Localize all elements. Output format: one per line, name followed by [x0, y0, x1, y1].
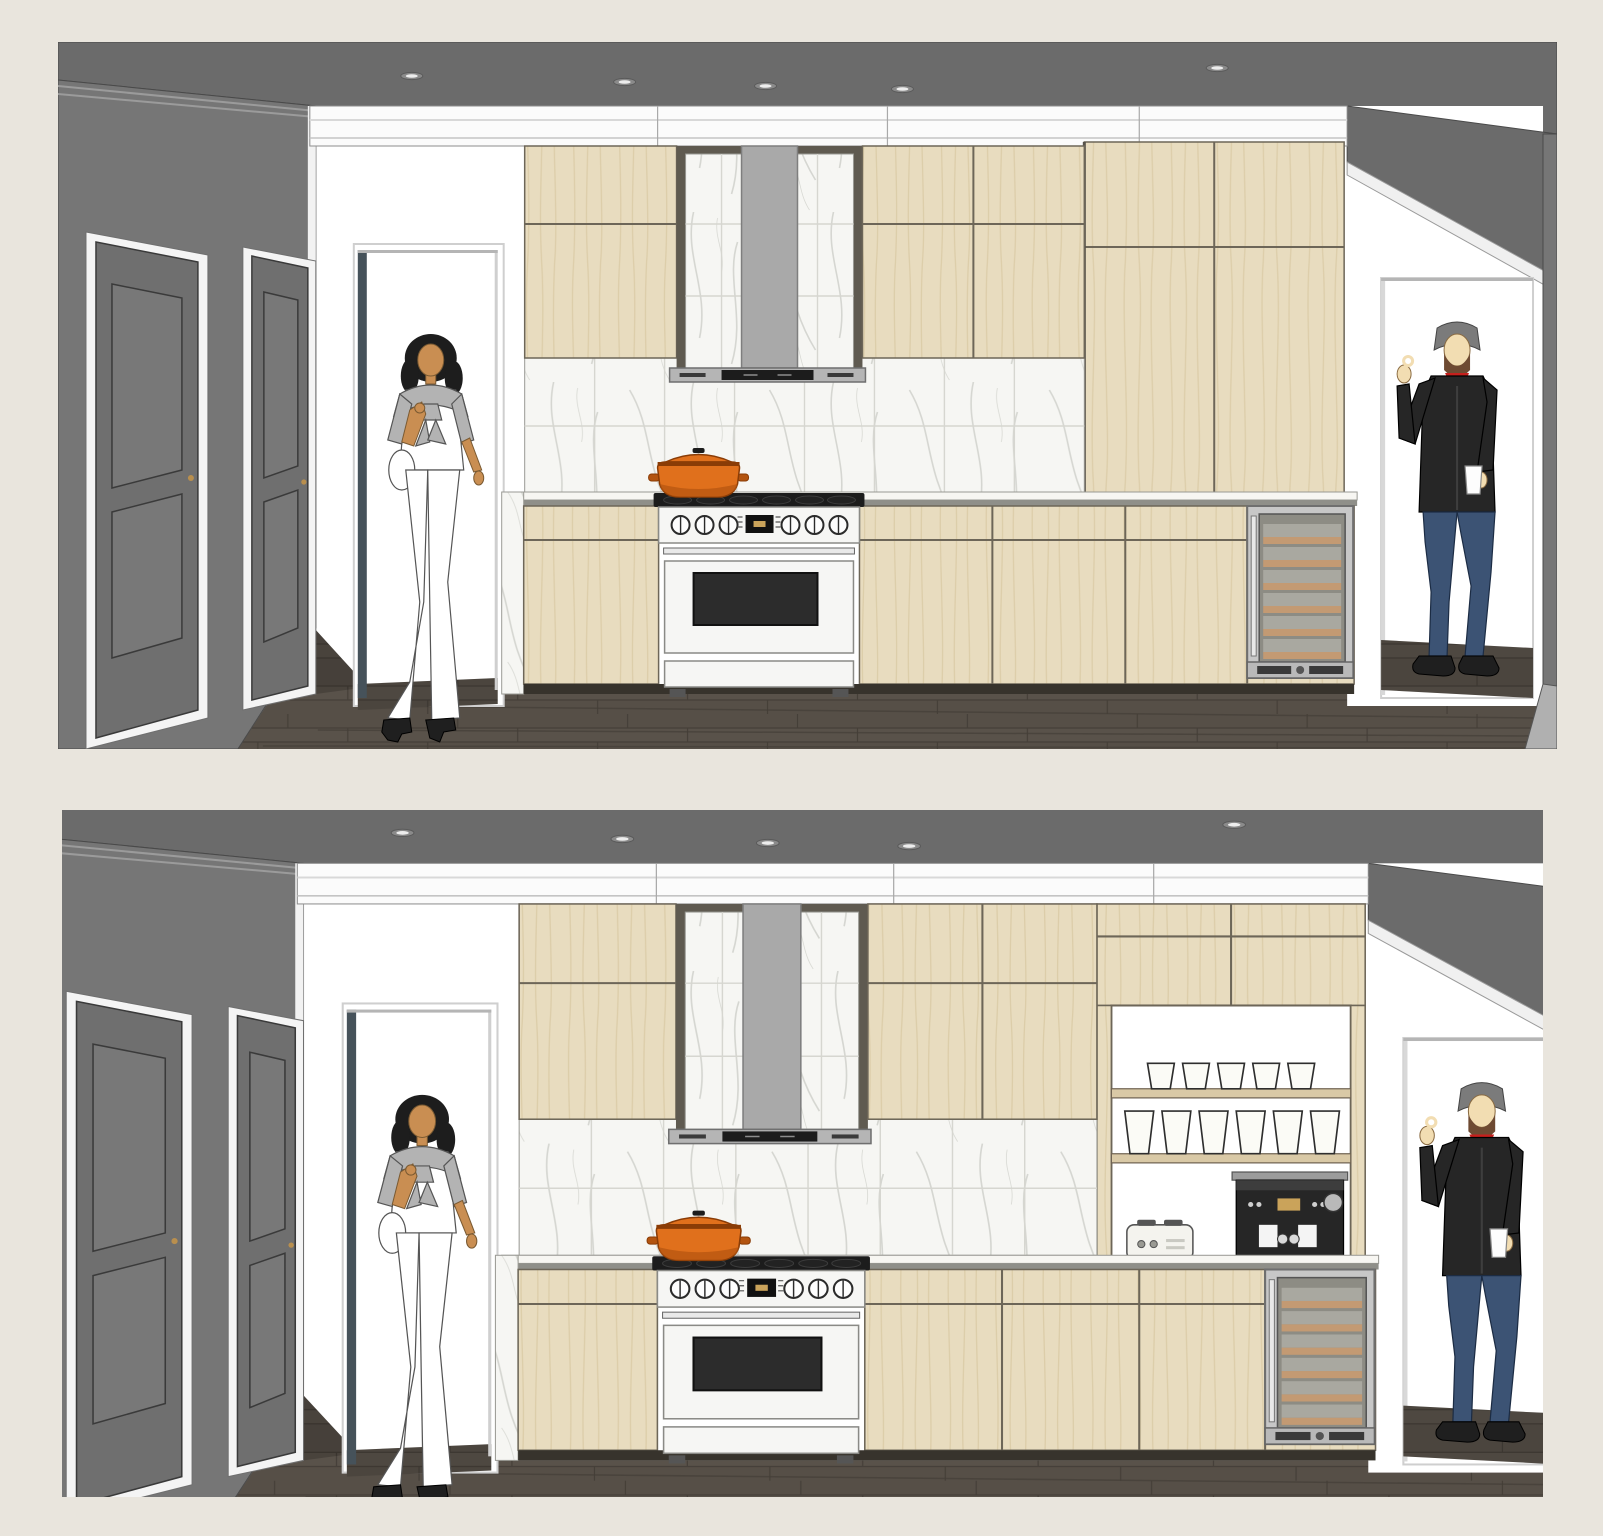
wine-cooler-handle	[1269, 1280, 1274, 1422]
recessed-light-icon	[614, 78, 636, 85]
man-shoe	[1459, 656, 1499, 676]
hood-niche	[670, 146, 866, 382]
recessed-light-icon	[891, 85, 913, 92]
gas-range	[652, 1256, 870, 1463]
warming-drawer	[665, 661, 854, 687]
hood-chimney	[742, 146, 798, 368]
wine-cooler-handle	[1251, 516, 1256, 656]
recessed-light-icon	[611, 835, 634, 842]
crown-molding	[297, 863, 1368, 904]
right-side	[1347, 106, 1557, 749]
hood-niche	[669, 904, 871, 1144]
left-side-wall	[58, 80, 316, 749]
woman-shoe	[372, 1485, 403, 1497]
woman-face	[418, 344, 444, 376]
man-shoe	[1436, 1422, 1480, 1442]
upper-cabinet-left	[525, 146, 677, 358]
espresso-machine	[1232, 1172, 1348, 1261]
stone-countertop	[502, 1255, 1379, 1269]
waterfall-end-panel	[495, 1255, 518, 1460]
left-side-wall	[62, 837, 304, 1497]
coffee-cup	[1465, 466, 1482, 494]
oven-window	[694, 1338, 822, 1391]
crown-molding	[310, 106, 1347, 146]
kitchen-rendering-scene	[62, 810, 1543, 1497]
recessed-light-icon	[391, 829, 414, 836]
right-edge-wall-strip	[1543, 134, 1557, 749]
woman-face	[409, 1105, 436, 1137]
door-knob	[188, 475, 194, 481]
recessed-light-icon	[401, 72, 423, 79]
interior-door-left	[66, 991, 192, 1497]
tall-closed-cabinets	[1084, 142, 1344, 498]
door-knob	[171, 1238, 177, 1244]
coffee-cup	[1490, 1229, 1508, 1257]
recessed-light-icon	[1206, 64, 1228, 71]
door-knob	[288, 1242, 293, 1247]
upper-cabinet-left	[519, 904, 676, 1119]
waterfall-end-panel	[502, 492, 524, 694]
warming-drawer	[664, 1427, 859, 1453]
recessed-light-icon	[1223, 821, 1246, 828]
rendering-panel-top	[58, 42, 1557, 749]
base-cabinets	[524, 506, 1354, 694]
door-jamb	[358, 250, 367, 698]
man-shoe	[1483, 1422, 1525, 1442]
gas-range	[654, 493, 865, 697]
interior-door-left	[86, 232, 208, 749]
hood-chimney	[743, 904, 801, 1129]
woman-shoe	[417, 1485, 448, 1497]
man-shoe	[1413, 656, 1455, 676]
wine-cooler	[1265, 1270, 1374, 1445]
kitchen-comparison-board	[0, 0, 1603, 1536]
wine-cooler	[1247, 506, 1353, 678]
stone-countertop	[508, 492, 1357, 506]
oven-handle	[663, 1312, 860, 1318]
door-knob	[301, 479, 306, 484]
recessed-light-icon	[898, 842, 921, 849]
rendering-panel-bottom	[62, 810, 1543, 1497]
toaster	[1127, 1220, 1193, 1260]
right-side	[1368, 863, 1543, 1497]
oven-handle	[664, 548, 855, 554]
recessed-light-icon	[756, 839, 779, 846]
interior-door-right	[228, 1007, 303, 1477]
interior-door-right	[243, 247, 316, 710]
recessed-light-icon	[755, 82, 777, 89]
base-cabinets	[518, 1270, 1375, 1461]
door-jamb	[347, 1010, 356, 1465]
kitchen-rendering-scene	[58, 42, 1557, 749]
open-shelf-coffee-station	[1097, 904, 1365, 1261]
open-shelf	[1111, 1154, 1350, 1163]
oven-window	[694, 573, 818, 625]
open-shelf	[1111, 1089, 1350, 1098]
